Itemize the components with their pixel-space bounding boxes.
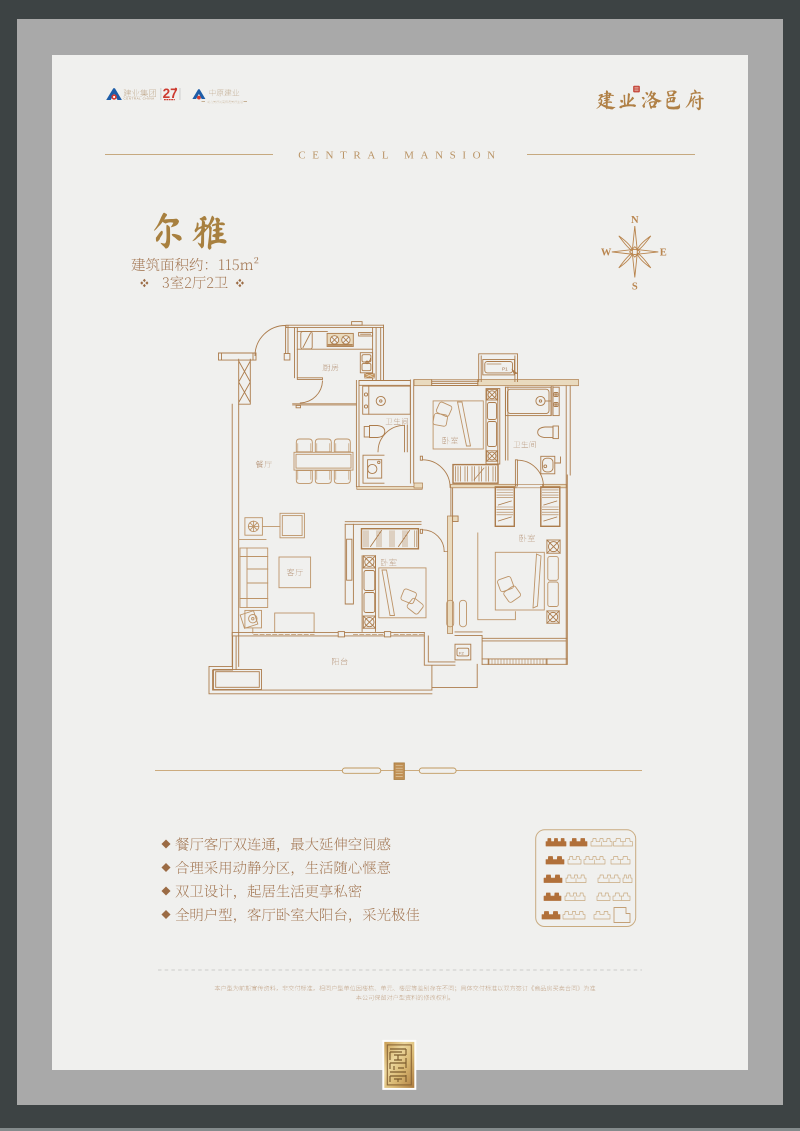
svg-text:F2: F2 bbox=[459, 651, 464, 656]
svg-text:CENTRAL CHINA: CENTRAL CHINA bbox=[124, 97, 155, 101]
svg-text:W: W bbox=[601, 248, 612, 259]
svg-text:P1: P1 bbox=[502, 366, 508, 371]
svg-text:S: S bbox=[632, 282, 638, 293]
svg-text:N: N bbox=[631, 215, 639, 226]
svg-text:CENTRAL MANSION: CENTRAL MANSION bbox=[298, 150, 501, 162]
svg-text:E: E bbox=[660, 248, 667, 259]
